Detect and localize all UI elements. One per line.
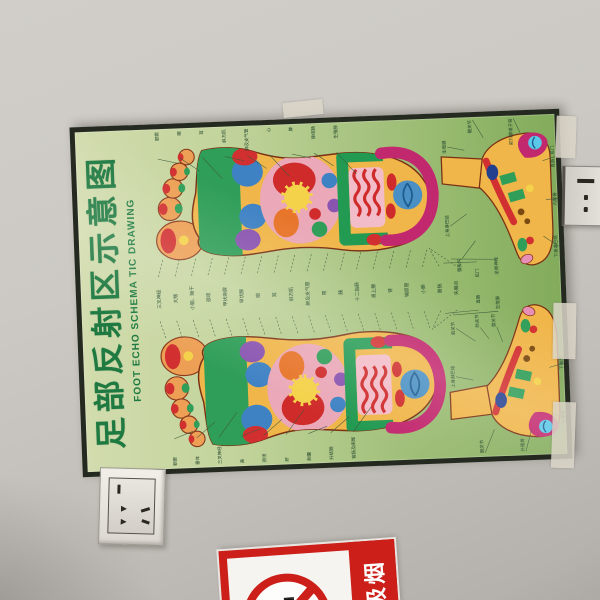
reflex-zone-label: 甲状旁腺 — [221, 287, 229, 307]
reflex-zone-label: 斜方肌 — [288, 287, 296, 302]
label-leader-line — [207, 257, 213, 276]
outlet-slot — [117, 485, 120, 494]
reflex-zone-label: 生殖腺 — [440, 140, 448, 154]
label-leader-line — [292, 316, 298, 335]
reflex-zone-label: 外尾骨 — [519, 438, 527, 452]
reflex-zone-label: 胰 — [337, 290, 344, 295]
reflex-zone-label: 十二指肠 — [353, 282, 361, 302]
label-leader-line — [306, 253, 312, 272]
no-smoking-text: 禁止吸烟 — [356, 558, 395, 600]
reflex-zone-label: 肾上腺 — [370, 283, 378, 298]
socket-slot — [584, 207, 588, 212]
outlet-slot — [141, 519, 150, 524]
inner-side-foot-diagram — [440, 132, 554, 269]
left-foot-sole-diagram — [160, 323, 442, 449]
label-leader-line — [408, 312, 414, 331]
foot-reflexology-chart: 额窦眼耳斜方肌肺及支气管心脾降结肠生殖腺额窦垂体三叉神经鼻颈项肝胆囊升结肠盲肠及… — [75, 114, 568, 472]
label-leader-line — [160, 321, 166, 340]
reflex-zone-label: 内尾骨 — [551, 192, 559, 206]
label-leader-line — [257, 255, 263, 274]
label-leader-line — [461, 241, 476, 259]
label-leader-line — [226, 319, 232, 338]
label-leader-line — [372, 250, 378, 269]
label-leader-line — [422, 248, 428, 267]
label-leader-line — [450, 214, 467, 226]
reflexology-poster: 足部反射区示意图 FOOT ECHO SCHEMA TIC DRAWING — [69, 109, 572, 478]
reflex-zone-label: 额窦 — [153, 131, 160, 141]
reflex-zone-label: 直肠 — [475, 294, 482, 304]
reflex-zone-label: 肩关节 — [449, 321, 457, 335]
label-leader-line — [158, 158, 177, 164]
tape-piece — [555, 116, 576, 159]
label-leader-line — [484, 429, 495, 453]
reflex-zone-label: 耳 — [272, 292, 278, 297]
outlet-slot — [141, 507, 150, 512]
label-leader-line — [432, 311, 442, 330]
socket-slot — [577, 179, 594, 183]
edge-socket — [561, 166, 600, 227]
power-outlet-panel — [107, 477, 155, 534]
reflex-zone-label: 斜方肌 — [220, 129, 228, 143]
reflex-zone-label: 肘关节 — [473, 314, 481, 328]
reflex-zone-label: 膝关节 — [490, 313, 498, 327]
outer-side-foot-diagram — [447, 304, 561, 441]
label-leader-line — [429, 248, 439, 267]
reflex-zone-label: 肺及支气管 — [243, 128, 251, 151]
label-leader-line — [513, 118, 520, 133]
label-leader-line — [472, 120, 483, 139]
reflex-zone-label: 甲状腺 — [238, 289, 246, 304]
wall-photo-scene: 足部反射区示意图 FOOT ECHO SCHEMA TIC DRAWING — [0, 0, 600, 600]
reflex-zone-label: 鼻 — [239, 458, 246, 463]
label-leader-line — [193, 320, 199, 339]
label-leader-line — [240, 255, 246, 274]
label-leader-line — [375, 313, 381, 332]
reflex-zone-label: 升结肠 — [328, 446, 336, 460]
reflex-zone-label: 眼 — [256, 293, 262, 298]
reflex-zone-label: 肺及支气管 — [304, 281, 312, 305]
right-foot-sole-diagram — [153, 138, 435, 264]
label-leader-line — [191, 257, 197, 276]
label-leader-line — [424, 311, 430, 330]
tape-piece — [553, 303, 577, 359]
reflex-zone-label: 耳 — [199, 130, 205, 135]
reflex-zone-label: 心 — [265, 127, 271, 132]
reflex-zone-label: 三叉神经 — [216, 446, 224, 465]
tape-piece — [282, 99, 323, 118]
label-leader-line — [276, 317, 282, 336]
label-leader-line — [429, 247, 455, 266]
reflex-zone-label: 膀胱 — [436, 283, 443, 293]
label-leader-line — [339, 251, 345, 270]
reflex-zone-label: 上身淋巴结 — [443, 215, 451, 238]
label-leader-line — [309, 315, 315, 334]
label-leader-line — [447, 146, 464, 151]
reflex-zone-label: 上身淋巴结 — [449, 365, 457, 388]
reflex-zone-label: 眼 — [177, 131, 183, 136]
label-leader-line — [389, 250, 395, 269]
reflex-zone-label: 胆囊 — [306, 451, 313, 461]
reflex-zone-label: 颈项 — [205, 292, 212, 302]
reflex-zone-label: 小脑、脑干 — [188, 286, 196, 310]
reflex-zone-label: 脾 — [287, 126, 294, 131]
reflex-zone-label: 垂体 — [194, 455, 201, 465]
reflex-zone-label: 三叉神经 — [155, 289, 163, 309]
reflex-zone-label: 大脑 — [172, 293, 179, 303]
reflex-zone-label: 小肠 — [420, 284, 427, 294]
label-leader-line — [290, 253, 296, 272]
label-leader-line — [445, 310, 479, 313]
label-leader-line — [456, 328, 475, 342]
label-leader-line — [356, 251, 362, 270]
tape-piece — [551, 402, 576, 469]
reflex-zone-label: 肛门 — [474, 268, 481, 278]
reflex-zone-label: 肾 — [387, 288, 394, 293]
reflex-zone-label: 盲肠及阑尾 — [350, 436, 358, 459]
label-leader-line — [210, 319, 216, 338]
label-leader-line — [391, 312, 397, 331]
reflex-zone-label: 额窦 — [172, 456, 179, 466]
label-leader-line — [358, 314, 364, 333]
power-outlet — [98, 467, 166, 546]
reflex-zone-label: 肝 — [284, 456, 290, 461]
reflex-zone-label: 降结肠 — [310, 125, 318, 139]
label-leader-line — [243, 318, 249, 337]
reflex-zone-label: 输尿管 — [403, 282, 411, 297]
label-leader-line — [456, 376, 473, 381]
reflex-zone-label: 坐骨神经 — [493, 256, 501, 275]
label-leader-line — [158, 258, 164, 277]
socket-slot — [584, 195, 588, 200]
label-leader-line — [497, 327, 503, 343]
reflex-zone-label: 颈项 — [261, 453, 268, 463]
reflex-zone-label: 前列腺或子宫 — [507, 118, 515, 145]
reflex-zone-label: 生殖腺 — [332, 125, 340, 139]
reflex-zone-label: 腹股沟 — [456, 258, 464, 272]
outlet-slot — [121, 506, 127, 512]
label-leader-line — [342, 314, 348, 333]
prohibition-circle — [240, 571, 334, 600]
label-leader-line — [177, 321, 183, 340]
label-leader-line — [273, 254, 279, 273]
sign-text-band: 禁止吸烟 — [348, 539, 404, 600]
label-leader-line — [174, 258, 180, 277]
no-smoking-sign: 禁止吸烟 — [218, 539, 403, 600]
outlet-slot — [121, 519, 127, 525]
label-leader-line — [323, 252, 329, 271]
label-leader-line — [480, 327, 489, 339]
label-leader-line — [325, 315, 331, 334]
label-leader-line — [259, 317, 265, 336]
reflex-zone-label: 髋关节 — [466, 119, 474, 133]
reflex-zone-label: 髋关节 — [478, 439, 486, 453]
reflex-zone-label: 失眠点 — [453, 280, 461, 295]
label-leader-line — [405, 249, 411, 268]
label-leader-line — [224, 256, 230, 275]
reflex-zone-label: 胃 — [322, 290, 328, 295]
reflex-zone-label: 生殖腺 — [494, 295, 502, 309]
